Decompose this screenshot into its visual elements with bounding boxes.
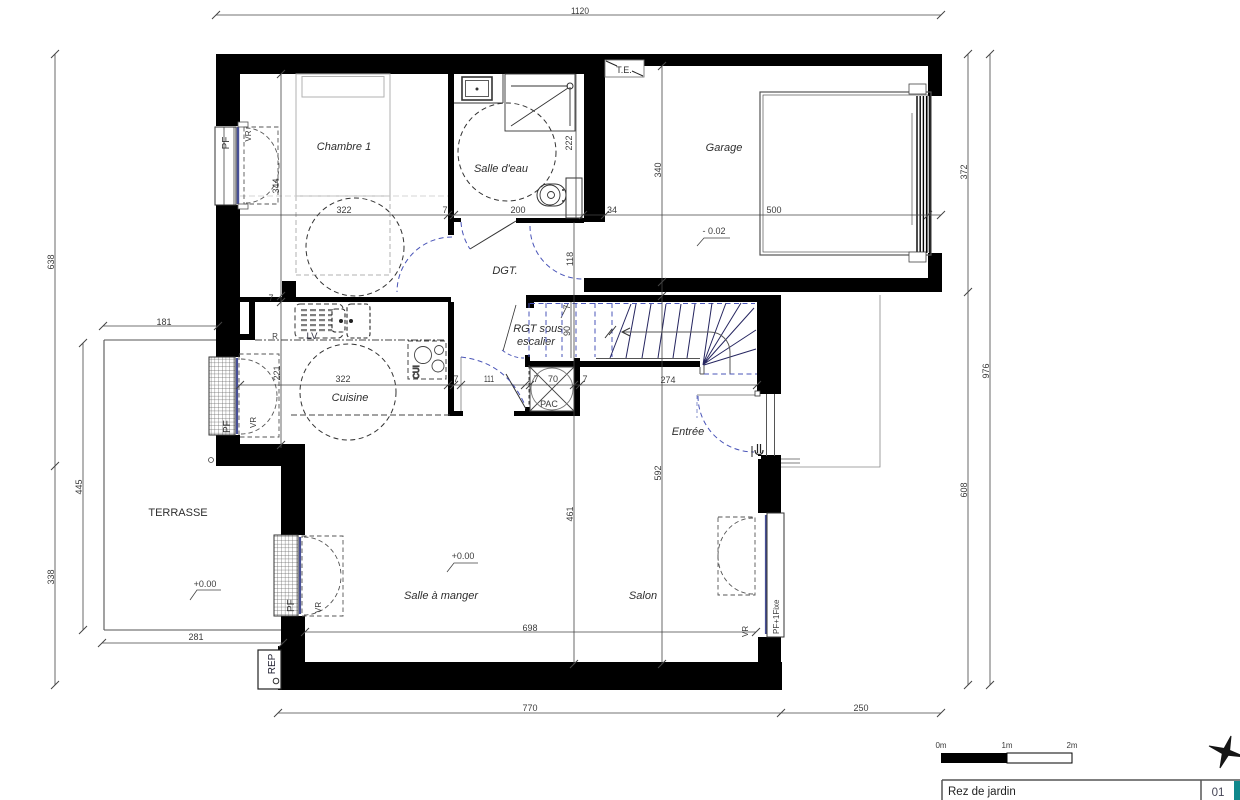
svg-text:+0.00: +0.00 <box>194 579 217 589</box>
svg-text:70: 70 <box>548 374 558 384</box>
svg-text:322: 322 <box>335 374 350 384</box>
svg-text:TERRASSE: TERRASSE <box>148 507 207 519</box>
svg-text:698: 698 <box>522 623 537 633</box>
svg-text:200: 200 <box>510 205 525 215</box>
svg-text:7: 7 <box>562 304 572 309</box>
svg-text:500: 500 <box>766 205 781 215</box>
svg-text:281: 281 <box>188 632 203 642</box>
svg-text:T.E.: T.E. <box>616 65 632 75</box>
svg-text:222: 222 <box>564 135 574 150</box>
svg-text:340: 340 <box>653 162 663 177</box>
svg-text:- 0.02: - 0.02 <box>702 226 725 236</box>
svg-text:250: 250 <box>853 703 868 713</box>
svg-text:770: 770 <box>522 703 537 713</box>
svg-text:7: 7 <box>442 205 447 215</box>
svg-text:Chambre 1: Chambre 1 <box>317 141 371 153</box>
svg-text:34: 34 <box>607 205 617 215</box>
svg-text:CUI: CUI <box>412 365 421 379</box>
svg-text:PAC: PAC <box>540 399 558 409</box>
svg-text:111: 111 <box>484 374 494 384</box>
svg-text:Rez de jardin: Rez de jardin <box>948 786 1016 798</box>
svg-text:escalier: escalier <box>517 336 556 348</box>
svg-text:PF: PF <box>221 137 232 150</box>
svg-text:2m: 2m <box>1066 741 1077 750</box>
svg-text:7: 7 <box>268 293 273 303</box>
svg-text:PF: PF <box>222 420 233 433</box>
svg-text:RGT sous: RGT sous <box>513 323 563 335</box>
svg-text:7: 7 <box>582 374 587 384</box>
svg-text:592: 592 <box>653 465 663 480</box>
svg-text:274: 274 <box>660 375 675 385</box>
svg-text:Cuisine: Cuisine <box>332 392 369 404</box>
svg-text:VR: VR <box>741 626 750 637</box>
svg-text:Salle à manger: Salle à manger <box>404 590 479 602</box>
svg-text:LV: LV <box>307 331 319 342</box>
svg-text:1120: 1120 <box>571 6 589 16</box>
svg-text:01: 01 <box>1212 787 1225 799</box>
svg-text:+0.00: +0.00 <box>452 551 475 561</box>
svg-text:181: 181 <box>156 317 171 327</box>
svg-text:Garage: Garage <box>706 142 743 154</box>
svg-text:90: 90 <box>562 326 572 336</box>
svg-text:PF+1Fixe: PF+1Fixe <box>772 599 781 634</box>
svg-text:VR: VR <box>249 417 258 428</box>
svg-text:Entrée: Entrée <box>672 426 704 438</box>
svg-text:REP: REP <box>267 653 278 674</box>
svg-text:Salle d'eau: Salle d'eau <box>474 163 528 175</box>
svg-text:VR: VR <box>314 602 323 613</box>
svg-text:445: 445 <box>74 479 84 494</box>
svg-text:976: 976 <box>981 363 991 378</box>
svg-text:608: 608 <box>959 482 969 497</box>
svg-text:118: 118 <box>565 252 575 266</box>
svg-text:0m: 0m <box>935 741 946 750</box>
svg-text:Salon: Salon <box>629 590 657 602</box>
svg-text:7: 7 <box>533 374 538 384</box>
svg-text:638: 638 <box>46 254 56 269</box>
svg-text:DGT.: DGT. <box>492 265 517 277</box>
svg-text:344: 344 <box>271 178 281 193</box>
svg-text:PF: PF <box>286 599 297 612</box>
svg-text:322: 322 <box>336 205 351 215</box>
svg-text:372: 372 <box>959 164 969 179</box>
svg-text:1m: 1m <box>1001 741 1012 750</box>
svg-text:338: 338 <box>46 569 56 584</box>
svg-text:221: 221 <box>272 365 282 380</box>
svg-text:461: 461 <box>565 506 575 521</box>
svg-text:7: 7 <box>453 374 458 384</box>
svg-text:R: R <box>272 332 278 341</box>
svg-text:VR: VR <box>244 130 253 141</box>
